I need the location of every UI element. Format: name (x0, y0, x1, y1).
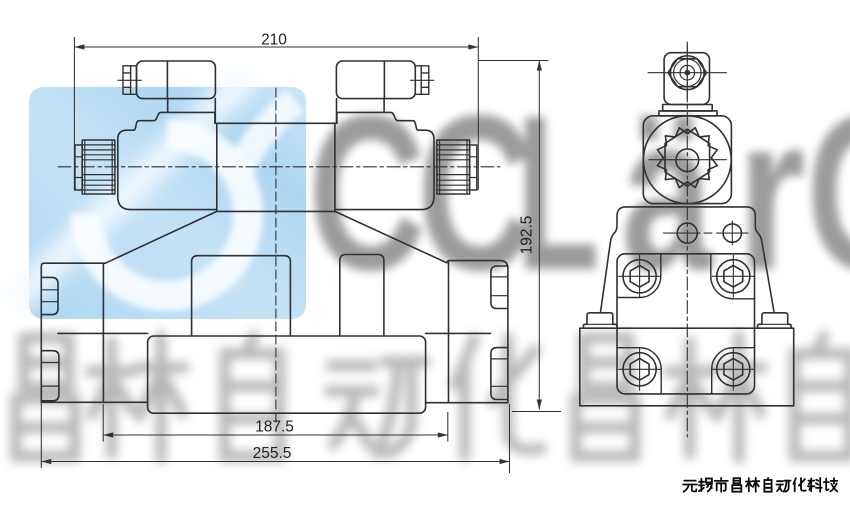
svg-text:187.5: 187.5 (255, 419, 294, 436)
svg-text:ä: ä (622, 70, 714, 317)
svg-text:L: L (516, 69, 600, 315)
svg-text:210: 210 (261, 32, 287, 49)
svg-text:C: C (806, 70, 850, 317)
svg-text:C: C (308, 70, 426, 317)
svg-text:r: r (737, 70, 806, 316)
svg-text:192.5: 192.5 (519, 216, 536, 255)
svg-text:255.5: 255.5 (253, 445, 292, 462)
